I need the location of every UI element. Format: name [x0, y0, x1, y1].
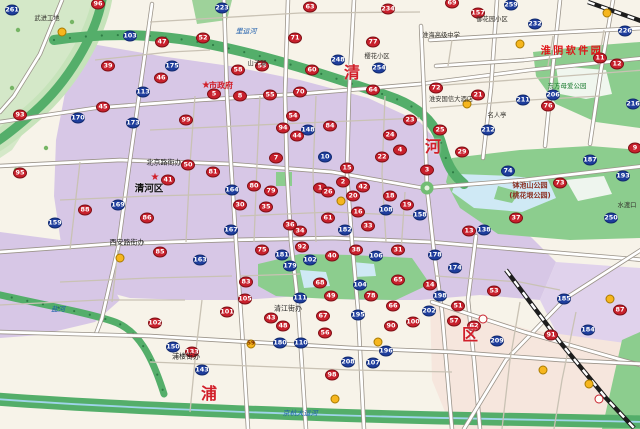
map-label: 北京路街办 [147, 160, 182, 167]
poi-marker-96[interactable]: 96 [91, 0, 105, 10]
map-label: (桃花垠公园) [509, 193, 550, 200]
map-label: 樱花小区 [364, 54, 389, 60]
poi-marker-44[interactable]: 44 [290, 131, 304, 142]
poi-marker-182[interactable]: 182 [338, 225, 352, 236]
poi-marker-9[interactable]: 9 [628, 143, 640, 154]
poi-marker-69[interactable]: 69 [445, 0, 459, 9]
poi-marker-52[interactable]: 52 [196, 33, 210, 44]
poi-marker-63[interactable]: 63 [303, 2, 317, 13]
poi-marker-202[interactable]: 202 [422, 306, 436, 317]
poi-marker-13[interactable]: 13 [462, 226, 476, 237]
poi-marker-111[interactable]: 111 [293, 293, 307, 304]
poi-marker-208[interactable]: 208 [341, 357, 355, 368]
poi-marker-42[interactable]: 42 [356, 182, 370, 193]
poi-marker-67[interactable]: 67 [316, 311, 330, 322]
poi-marker-14[interactable]: 14 [423, 280, 437, 291]
map-label: 区 [462, 327, 478, 343]
poi-marker[interactable] [603, 9, 612, 18]
poi-marker-105[interactable]: 105 [238, 294, 252, 305]
poi-marker-108[interactable]: 108 [379, 205, 393, 216]
map-label: 里运河 [236, 29, 257, 36]
poi-marker-50[interactable]: 50 [181, 160, 195, 171]
poi-marker-261[interactable]: 261 [5, 5, 19, 16]
poi-marker-167[interactable]: 167 [224, 225, 238, 236]
poi-marker-102[interactable]: 102 [148, 318, 162, 329]
poi-marker-33[interactable]: 33 [361, 221, 375, 232]
poi-marker-35[interactable]: 35 [259, 202, 273, 213]
map-label: 京杭大运河 [283, 411, 318, 418]
poi-marker-138[interactable]: 138 [477, 225, 491, 236]
poi-marker[interactable] [116, 254, 125, 263]
poi-marker[interactable] [585, 380, 594, 389]
poi-marker-54[interactable]: 54 [286, 111, 300, 122]
poi-marker-211[interactable]: 211 [516, 95, 530, 106]
poi-marker-254[interactable]: 254 [372, 63, 386, 74]
map-label: 山子湖 [248, 61, 267, 67]
poi-marker-234[interactable]: 234 [381, 4, 395, 15]
government-star-icon: ★ [202, 81, 211, 91]
poi-marker-170[interactable]: 170 [71, 113, 85, 124]
poi-marker-180[interactable]: 180 [273, 338, 287, 349]
poi-marker[interactable] [539, 366, 548, 375]
poi-marker-232[interactable]: 232 [528, 19, 542, 30]
poi-marker-55[interactable]: 55 [263, 90, 277, 101]
poi-marker-93[interactable]: 93 [13, 110, 27, 121]
poi-marker-100[interactable]: 100 [406, 317, 420, 328]
map-label: 名人亭 [488, 113, 507, 119]
map-label: 御花园小区 [476, 17, 507, 23]
poi-marker-72[interactable]: 72 [429, 83, 443, 94]
poi-marker-216[interactable]: 216 [626, 99, 640, 110]
poi-marker-31[interactable]: 31 [391, 245, 405, 256]
poi-marker-175[interactable]: 175 [165, 61, 179, 72]
map-label: 盐河 [51, 307, 65, 314]
poi-marker[interactable] [374, 338, 383, 347]
poi-marker-90[interactable]: 90 [384, 321, 398, 332]
poi-marker-195[interactable]: 195 [351, 310, 365, 321]
poi-marker-107[interactable]: 107 [366, 358, 380, 369]
poi-marker-20[interactable]: 20 [346, 191, 360, 202]
poi-marker-196[interactable]: 196 [379, 346, 393, 357]
poi-marker-49[interactable]: 49 [324, 291, 338, 302]
poi-marker-73[interactable]: 73 [553, 178, 567, 189]
poi-marker-91[interactable]: 91 [544, 330, 558, 341]
poi-marker[interactable] [331, 395, 340, 404]
poi-marker-193[interactable]: 193 [616, 171, 630, 182]
poi-marker-81[interactable]: 81 [206, 167, 220, 178]
poi-marker-61[interactable]: 61 [321, 213, 335, 224]
poi-marker-103[interactable]: 103 [123, 31, 137, 42]
poi-marker-15[interactable]: 15 [340, 163, 354, 174]
poi-marker-68[interactable]: 68 [313, 278, 327, 289]
poi-marker-143[interactable]: 143 [195, 365, 209, 376]
poi-marker-174[interactable]: 174 [448, 263, 462, 274]
poi-marker-98[interactable]: 98 [325, 370, 339, 381]
poi-marker-86[interactable]: 86 [140, 213, 154, 224]
poi-marker-83[interactable]: 83 [239, 277, 253, 288]
poi-marker-2[interactable]: 2 [336, 177, 350, 188]
map-annotation-layer: 9626122363234691572592322261112103475271… [0, 0, 640, 429]
poi-marker-85[interactable]: 85 [153, 247, 167, 258]
poi-marker-212[interactable]: 212 [481, 125, 495, 136]
map-label: 西安路街办 [110, 240, 145, 247]
poi-marker-92[interactable]: 92 [295, 242, 309, 253]
poi-marker[interactable] [337, 197, 346, 206]
poi-marker-43[interactable]: 43 [264, 313, 278, 324]
poi-marker-223[interactable]: 223 [215, 3, 229, 14]
poi-marker-106[interactable]: 106 [369, 251, 383, 262]
map-label: 淮安国信大酒店 [429, 97, 473, 103]
poi-marker-19[interactable]: 19 [400, 200, 414, 211]
map-label: 河 [425, 139, 441, 155]
poi-marker-59[interactable]: 59 [247, 340, 256, 349]
map-label: 清江街办 [274, 306, 302, 313]
map-label: 钵池山公园 [513, 183, 548, 190]
government-star-icon: ★ [151, 173, 160, 183]
map-label: 淮海高级中学 [422, 33, 460, 39]
poi-marker-60[interactable]: 60 [305, 65, 319, 76]
poi-marker-48[interactable]: 48 [276, 321, 290, 332]
poi-marker-76[interactable]: 76 [541, 101, 555, 112]
poi-marker-88[interactable]: 88 [78, 205, 92, 216]
poi-marker-45[interactable]: 45 [96, 102, 110, 113]
poi-marker-70[interactable]: 70 [293, 87, 307, 98]
poi-marker-150[interactable]: 150 [166, 342, 180, 353]
poi-marker-40[interactable]: 40 [325, 251, 339, 262]
poi-marker-58[interactable]: 58 [231, 65, 245, 76]
poi-marker-39[interactable]: 39 [101, 61, 115, 72]
poi-marker-185[interactable]: 185 [557, 294, 571, 305]
poi-marker-80[interactable]: 80 [247, 181, 261, 192]
poi-marker-169[interactable]: 169 [111, 200, 125, 211]
poi-marker-25[interactable]: 25 [433, 125, 447, 136]
map-label: 武进工地 [34, 16, 59, 22]
poi-marker-209[interactable]: 209 [490, 336, 504, 347]
poi-marker-248[interactable]: 248 [331, 55, 345, 66]
poi-marker-87[interactable]: 87 [613, 305, 627, 316]
poi-marker-24[interactable]: 24 [383, 130, 397, 141]
poi-marker-198[interactable]: 198 [433, 291, 447, 302]
poi-marker-104[interactable]: 104 [353, 280, 367, 291]
poi-marker-113[interactable]: 113 [136, 87, 150, 98]
poi-marker-101[interactable]: 101 [220, 307, 234, 318]
poi-marker-94[interactable]: 94 [276, 123, 290, 134]
poi-marker-30[interactable]: 30 [233, 200, 247, 211]
city-map-canvas[interactable]: 9626122363234691572592322261112103475271… [0, 0, 640, 429]
poi-marker[interactable] [58, 28, 67, 37]
poi-marker-206[interactable]: 206 [546, 90, 560, 101]
map-label: 水渡口 [618, 203, 637, 209]
poi-marker-71[interactable]: 71 [288, 33, 302, 44]
poi-marker-22[interactable]: 22 [375, 152, 389, 163]
poi-marker-95[interactable]: 95 [13, 168, 27, 179]
poi-marker-102[interactable]: 102 [303, 255, 317, 266]
poi-marker-21[interactable]: 21 [471, 90, 485, 101]
poi-marker-53[interactable]: 53 [487, 286, 501, 297]
poi-marker-99[interactable]: 99 [179, 115, 193, 126]
map-label: 浦 [201, 386, 217, 402]
poi-marker-4[interactable]: 4 [393, 145, 407, 156]
poi-marker-250[interactable]: 250 [604, 213, 618, 224]
poi-marker-26[interactable]: 26 [321, 187, 335, 198]
poi-marker-65[interactable]: 65 [391, 275, 405, 286]
map-label: 东方母爱公园 [548, 83, 587, 90]
poi-marker[interactable] [595, 395, 604, 404]
poi-marker-7[interactable]: 7 [269, 153, 283, 164]
poi-marker-37[interactable]: 37 [509, 213, 523, 224]
poi-marker-38[interactable]: 38 [349, 245, 363, 256]
poi-marker-159[interactable]: 159 [48, 218, 62, 229]
poi-marker-77[interactable]: 77 [366, 37, 380, 48]
poi-marker[interactable] [479, 315, 488, 324]
poi-marker-56[interactable]: 56 [318, 328, 332, 339]
poi-marker-47[interactable]: 47 [155, 37, 169, 48]
poi-marker-8[interactable]: 8 [233, 91, 247, 102]
poi-marker-179[interactable]: 179 [283, 261, 297, 272]
poi-marker-51[interactable]: 51 [451, 301, 465, 312]
poi-marker-78[interactable]: 78 [364, 291, 378, 302]
map-label: 浦楼街办 [172, 354, 200, 361]
poi-marker-12[interactable]: 12 [610, 59, 624, 70]
poi-marker-158[interactable]: 158 [413, 210, 427, 221]
poi-marker-79[interactable]: 79 [264, 186, 278, 197]
poi-marker-16[interactable]: 16 [351, 207, 365, 218]
poi-marker-110[interactable]: 110 [294, 338, 308, 349]
poi-marker-57[interactable]: 57 [447, 316, 461, 327]
poi-marker-259[interactable]: 259 [504, 0, 518, 11]
poi-marker-181[interactable]: 181 [275, 250, 289, 261]
poi-marker-184[interactable]: 184 [581, 325, 595, 336]
poi-marker-10[interactable]: 10 [318, 152, 332, 163]
poi-marker-29[interactable]: 29 [455, 147, 469, 158]
poi-marker-173[interactable]: 173 [126, 118, 140, 129]
map-label: 清河区 [135, 184, 164, 194]
poi-marker-163[interactable]: 163 [193, 255, 207, 266]
poi-marker[interactable] [606, 295, 615, 304]
poi-marker-84[interactable]: 84 [323, 121, 337, 132]
poi-marker-64[interactable]: 64 [366, 85, 380, 96]
map-label: 市政府 [209, 82, 233, 90]
poi-marker-178[interactable]: 178 [428, 250, 442, 261]
poi-marker-164[interactable]: 164 [225, 185, 239, 196]
poi-marker[interactable] [516, 40, 525, 49]
poi-marker-226[interactable]: 226 [618, 26, 632, 37]
poi-marker-3[interactable]: 3 [420, 165, 434, 176]
poi-marker-66[interactable]: 66 [386, 301, 400, 312]
poi-marker-34[interactable]: 34 [293, 226, 307, 237]
poi-marker-187[interactable]: 187 [583, 155, 597, 166]
poi-marker-75[interactable]: 75 [255, 245, 269, 256]
poi-marker-74[interactable]: 74 [501, 166, 515, 177]
poi-marker-18[interactable]: 18 [383, 191, 397, 202]
poi-marker-23[interactable]: 23 [403, 115, 417, 126]
map-label: 清 [344, 65, 360, 81]
poi-marker-46[interactable]: 46 [154, 73, 168, 84]
map-label: 淮阴软件园 [541, 47, 604, 57]
